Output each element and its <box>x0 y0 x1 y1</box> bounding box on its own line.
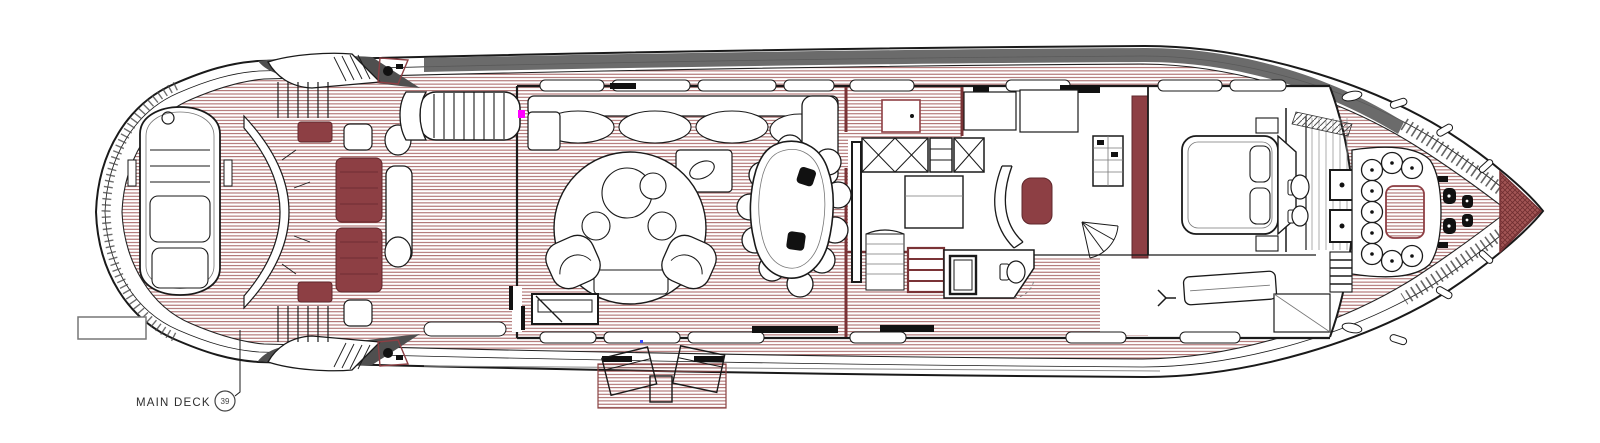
aft-stool-bottom <box>385 237 411 267</box>
transom-cushion-bottom <box>298 282 332 302</box>
deck-label: MAIN DECK <box>136 397 211 409</box>
helm-seat <box>1022 178 1052 224</box>
pillow-1 <box>1250 146 1270 182</box>
galley-x-cabinet-2 <box>954 138 984 172</box>
tv-cabinet <box>532 294 598 324</box>
stern-canopy-bottom <box>268 336 408 371</box>
foredeck-steps <box>1330 252 1352 292</box>
winch-top <box>383 66 393 76</box>
master-cabin <box>1182 118 1296 251</box>
galley-tall-cabinet <box>852 142 861 282</box>
aft-chair-bottom <box>344 300 372 326</box>
transom-cushion-top <box>298 122 332 142</box>
helm-dashboard <box>1093 136 1123 186</box>
stern-canopy-top <box>268 53 408 88</box>
salon-side-table <box>528 112 560 150</box>
galley-island <box>905 176 963 228</box>
nightstand-bottom <box>1256 236 1278 251</box>
dining-table <box>750 141 833 278</box>
aft-chair-top <box>344 124 372 150</box>
galley-x-counter <box>862 138 928 172</box>
master-bed <box>1182 136 1296 234</box>
toilet <box>1000 261 1025 283</box>
winch-bottom <box>383 348 393 358</box>
salon-door <box>512 286 522 332</box>
magenta-marker <box>518 110 525 118</box>
helm-master-bulkhead <box>1132 96 1148 258</box>
yacht-main-deck-plan: MAIN DECK 39 <box>0 0 1600 443</box>
pillow-2 <box>1250 188 1270 224</box>
nightstand-top <box>1256 118 1278 133</box>
stairs-down <box>908 248 944 292</box>
galley-sideboard <box>882 100 920 132</box>
deck-plan-svg: MAIN DECK 39 <box>0 0 1600 443</box>
stairs-curved <box>866 230 904 290</box>
tender-boat <box>128 107 232 295</box>
bow-anchor-hatch <box>1500 172 1541 252</box>
tender-chock-right <box>224 160 232 186</box>
tender-chock-left <box>128 160 136 186</box>
galley-cabinet-stack <box>930 138 952 172</box>
blue-marker <box>640 340 643 343</box>
foredeck-table <box>1386 186 1424 238</box>
flybridge-stairs <box>400 92 520 140</box>
place-setting-2 <box>786 231 806 251</box>
gangway <box>78 317 146 339</box>
sheet-number: 39 <box>221 397 230 406</box>
